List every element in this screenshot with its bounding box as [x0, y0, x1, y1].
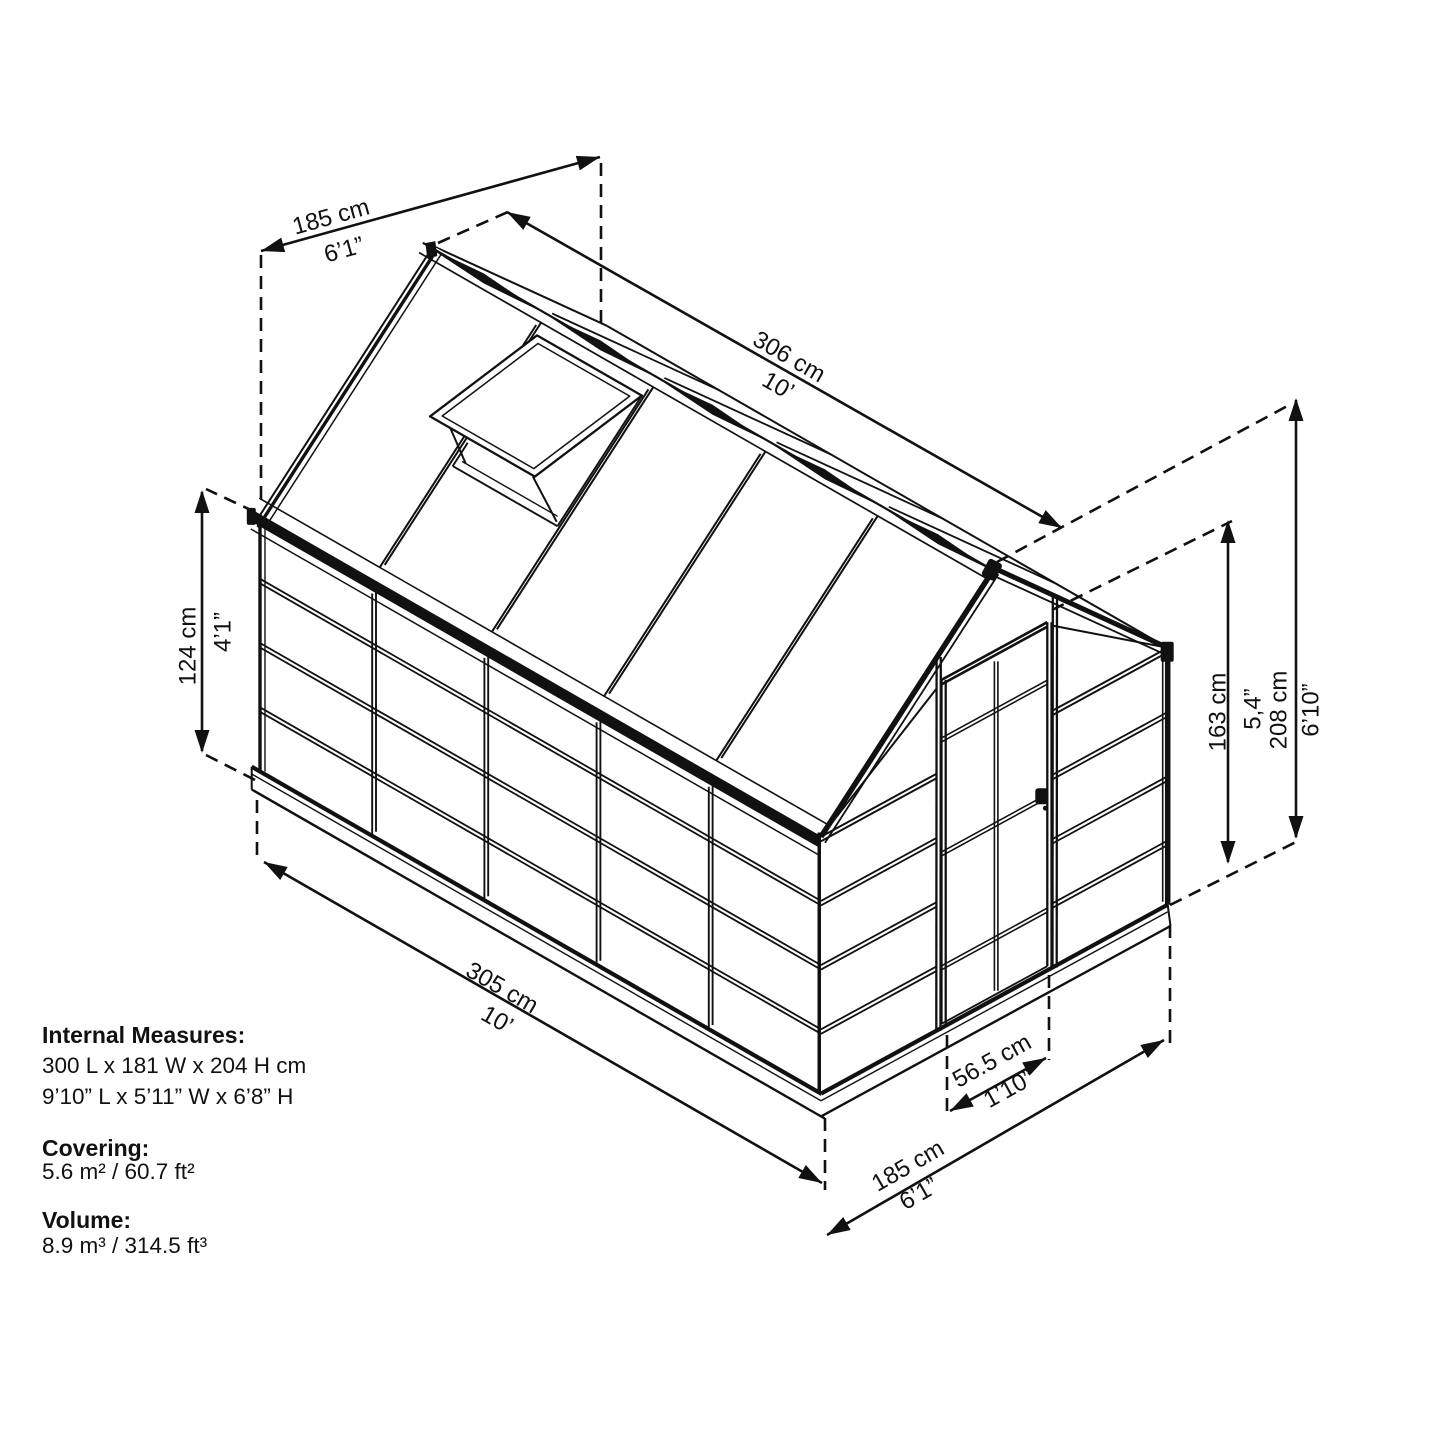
- svg-text:8.9 m³ / 314.5 ft³: 8.9 m³ / 314.5 ft³: [42, 1233, 208, 1258]
- svg-text:208 cm: 208 cm: [1266, 671, 1293, 750]
- svg-text:5,4”: 5,4”: [1240, 688, 1267, 729]
- svg-text:300 L x 181 W x 204 H cm: 300 L x 181 W x 204 H cm: [42, 1053, 306, 1078]
- svg-text:124 cm: 124 cm: [175, 607, 202, 686]
- svg-text:Internal Measures:: Internal Measures:: [42, 1022, 245, 1048]
- svg-text:6’10”: 6’10”: [1298, 683, 1325, 736]
- svg-text:4’1”: 4’1”: [210, 612, 237, 652]
- svg-text:5.6 m² / 60.7 ft²: 5.6 m² / 60.7 ft²: [42, 1159, 195, 1184]
- svg-text:9’10” L x 5’11” W x 6’8” H: 9’10” L x 5’11” W x 6’8” H: [42, 1084, 293, 1109]
- svg-text:Covering:: Covering:: [42, 1135, 149, 1161]
- svg-text:Volume:: Volume:: [42, 1207, 131, 1233]
- svg-text:163 cm: 163 cm: [1205, 673, 1232, 752]
